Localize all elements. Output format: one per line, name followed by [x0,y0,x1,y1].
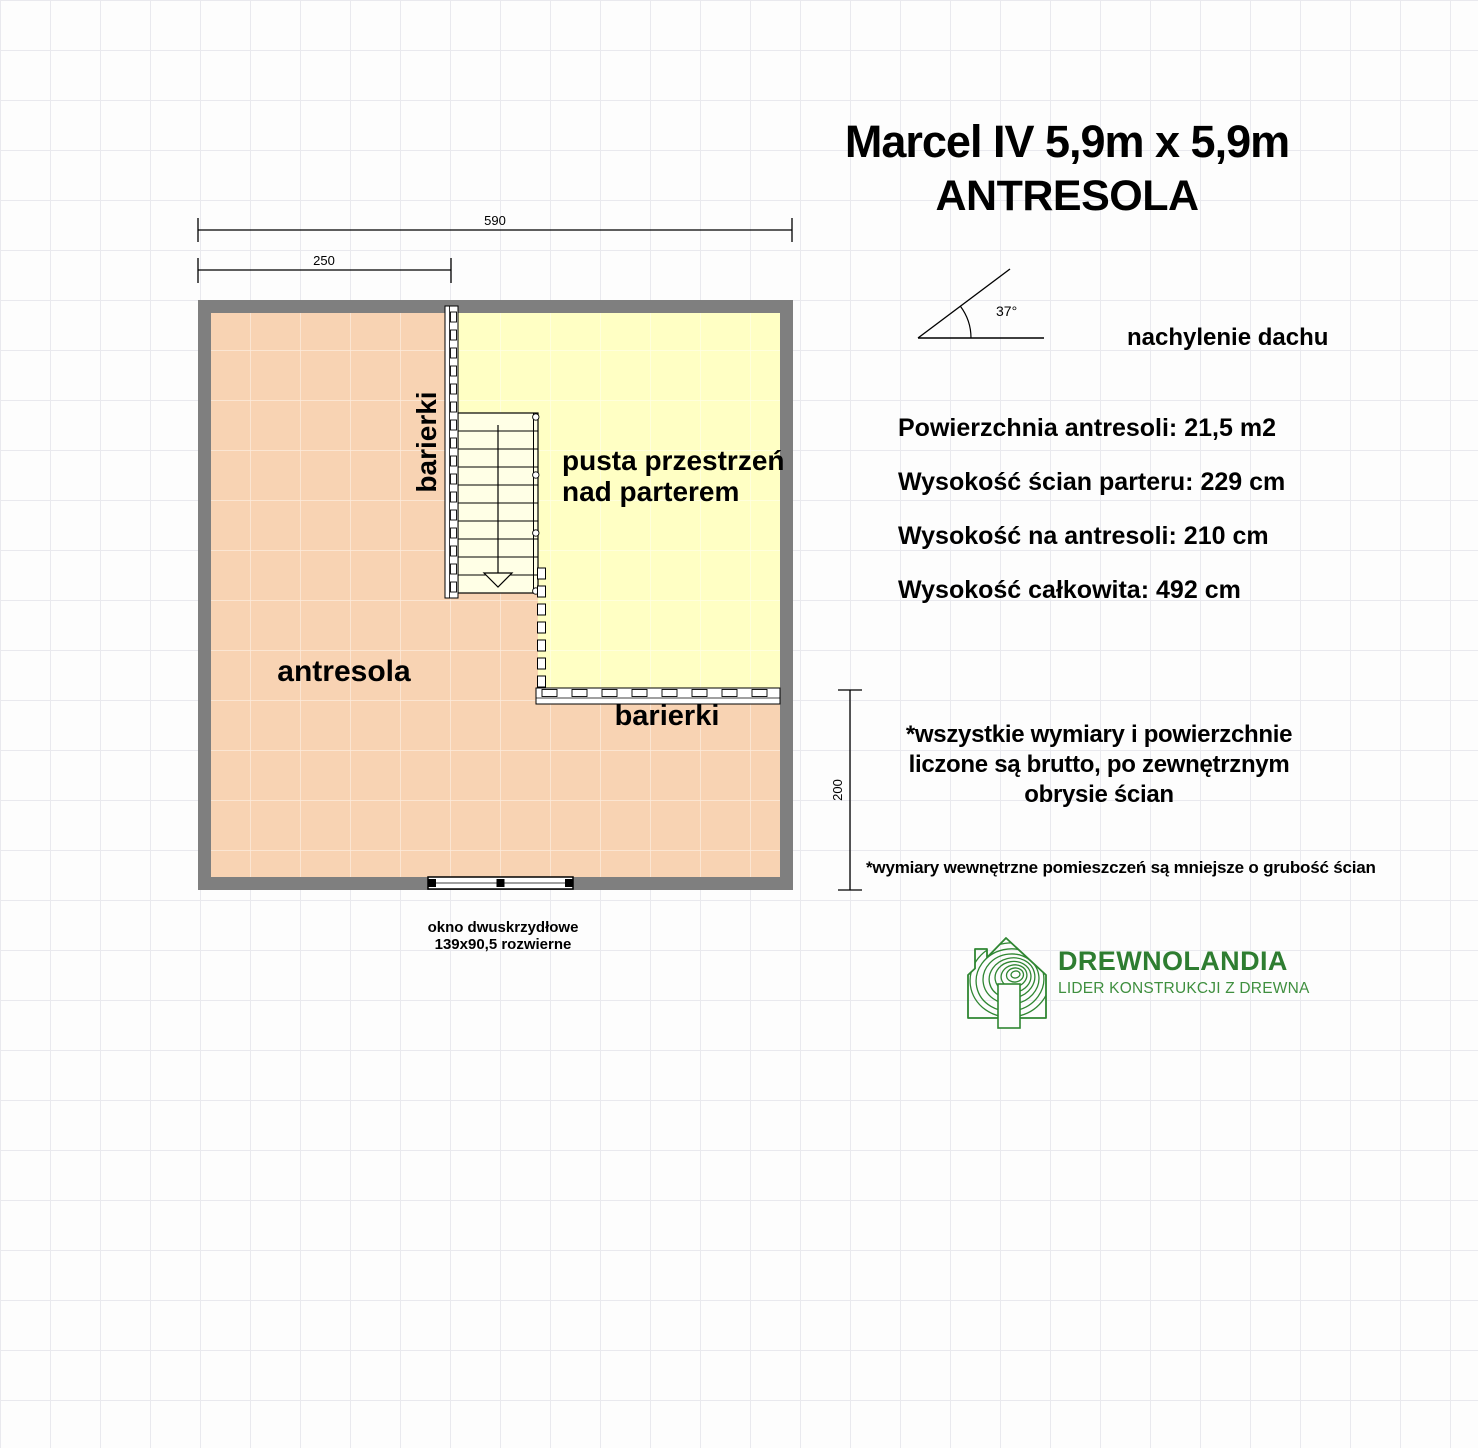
railing-left [445,306,458,598]
note-main-line1: *wszystkie wymiary i powierzchnie [849,720,1349,750]
logo-house-icon [960,934,1052,1030]
title-block: Marcel IV 5,9m x 5,9m ANTRESOLA [760,114,1374,222]
spec-wall-height-label: Wysokość ścian parteru: [898,468,1193,496]
spec-area-value: 21,5 m2 [1184,414,1276,442]
railing-label-left: barierki [411,377,445,507]
railing-label-bottom: barierki [567,700,767,733]
spec-mezzanine-height: Wysokość na antresoli:210 cm [898,522,1285,551]
spec-total-height-value: 492 cm [1156,576,1241,604]
roof-caption: nachylenie dachu [1127,324,1328,352]
note-main-line2: liczone są brutto, po zewnętrznym [849,750,1349,780]
floor-plan-drawing: 590 250 [190,210,870,970]
note-dimensions-gross: *wszystkie wymiary i powierzchnie liczon… [849,720,1349,810]
void-label: pusta przestrzeń nad parterem [562,445,785,507]
logo-name: DREWNOLANDIA [1058,946,1310,977]
note-inner-dimensions: *wymiary wewnętrzne pomieszczeń są mniej… [866,858,1376,878]
logo-tagline: LIDER KONSTRUKCJI Z DREWNA [1058,980,1310,998]
window-symbol [428,877,573,889]
roof-pitch-diagram: 37° [900,255,1070,350]
dimension-250: 250 [198,253,451,283]
dimension-200: 200 [830,690,862,890]
page: Marcel IV 5,9m x 5,9m ANTRESOLA 37° nach… [0,0,1478,1448]
staircase [458,413,539,594]
room-label-antresola: antresola [244,655,444,689]
window-label-line1: okno dwuskrzydłowe [398,919,608,936]
dimension-200-label: 200 [830,779,845,801]
note-main-line3: obrysie ścian [849,780,1349,810]
void-label-line2: nad parterem [562,476,785,507]
spec-total-height-label: Wysokość całkowita: [898,576,1149,604]
spec-area: Powierzchnia antresoli:21,5 m2 [898,414,1285,443]
page-title-line1: Marcel IV 5,9m x 5,9m [760,114,1374,170]
spec-wall-height-value: 229 cm [1200,468,1285,496]
spec-wall-height: Wysokość ścian parteru:229 cm [898,468,1285,497]
dimension-250-label: 250 [313,253,335,268]
railing-mid-vertical [538,568,546,687]
logo-text-block: DREWNOLANDIA LIDER KONSTRUKCJI Z DREWNA [1058,946,1310,998]
house-door [998,984,1020,1028]
roof-angle-value: 37° [996,303,1017,319]
void-label-line1: pusta przestrzeń [562,445,785,476]
dimension-590-label: 590 [484,213,506,228]
window-label: okno dwuskrzydłowe 139x90,5 rozwierne [398,919,608,953]
dimension-590: 590 [198,213,792,242]
interior-grid-overlay [211,313,780,877]
window-label-line2: 139x90,5 rozwierne [398,936,608,953]
spec-area-label: Powierzchnia antresoli: [898,414,1177,442]
roof-angle-arc [960,306,971,338]
spec-total-height: Wysokość całkowita:492 cm [898,576,1285,605]
spec-mezzanine-height-label: Wysokość na antresoli: [898,522,1177,550]
spec-mezzanine-height-value: 210 cm [1184,522,1269,550]
spec-list: Powierzchnia antresoli:21,5 m2 Wysokość … [898,414,1285,630]
